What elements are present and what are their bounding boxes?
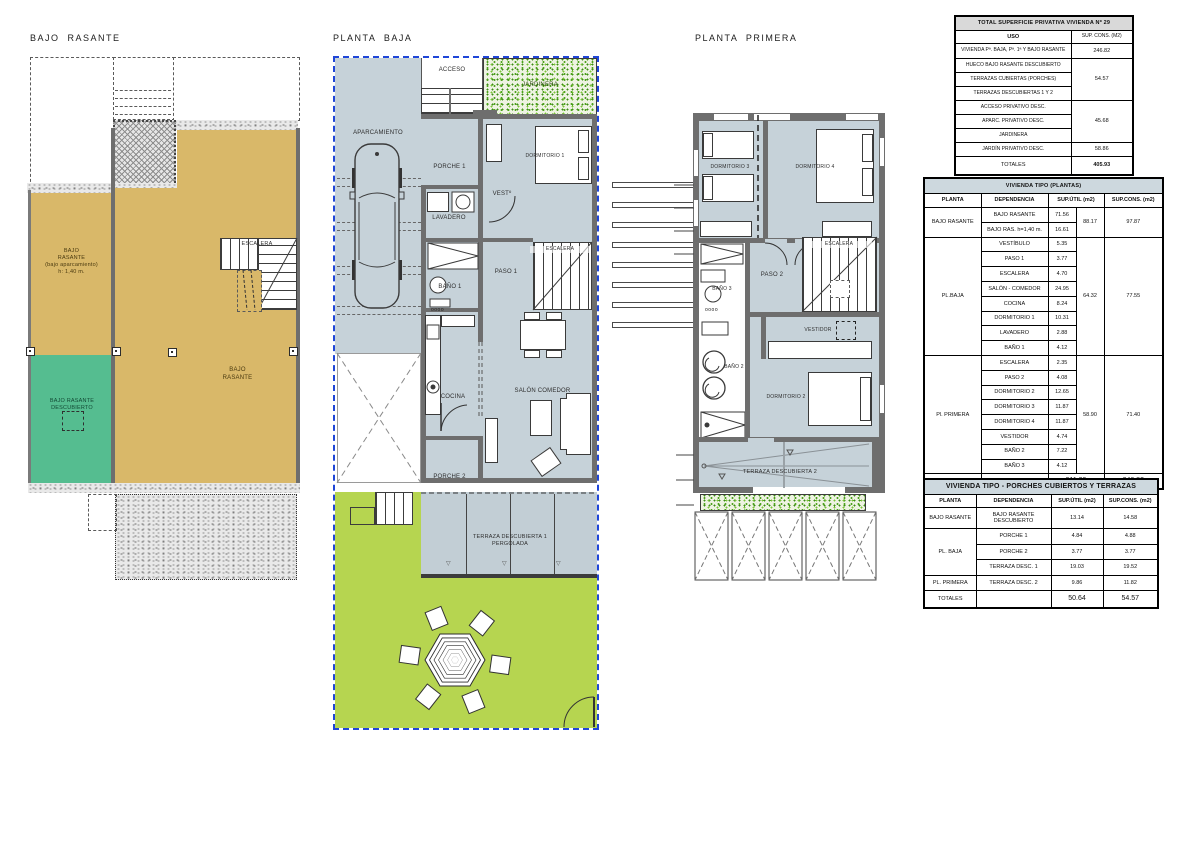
plan-title-bajo-rasante: BAJO RASANTE: [30, 33, 121, 43]
util-cell: 5.35: [1048, 237, 1076, 252]
void-room-outline: [30, 57, 115, 187]
wall: [745, 317, 750, 440]
planta-cell: PL.BAJA: [924, 237, 981, 355]
planter-outline: [62, 411, 84, 431]
dependencia-cell: DORMITORIO 4: [981, 415, 1048, 430]
wall: [28, 190, 31, 483]
louver-bar: [612, 322, 694, 328]
stair-diagonal: [802, 237, 877, 312]
totales-label: TOTALES: [924, 591, 976, 609]
dependencia-cell: TERRAZA DESC. 1: [976, 560, 1051, 576]
louver-bar: [612, 302, 694, 308]
void-room-outline: [173, 57, 300, 121]
util-cell: 4.12: [1048, 459, 1076, 474]
util-cell: 19.03: [1051, 560, 1103, 576]
section-dash-line: [757, 115, 759, 240]
col-header-planta: PLANTA: [924, 194, 981, 208]
util-cell: 3.77: [1048, 252, 1076, 267]
util-cell: 11.87: [1048, 415, 1076, 430]
pillow: [703, 176, 713, 200]
window: [714, 114, 748, 120]
stair-void-outline: [113, 57, 175, 120]
door-arc: [765, 243, 787, 265]
subtotal-cell: 58.90: [1076, 355, 1104, 473]
table-vivienda-tipo-plantas: VIVIENDA TIPO (PLANTAS) PLANTA DEPENDENC…: [923, 177, 1164, 490]
wall: [763, 121, 768, 238]
value-cell: 54.57: [1071, 59, 1133, 101]
util-cell: 11.87: [1048, 400, 1076, 415]
col-header-uso: USO: [955, 31, 1071, 44]
util-cell: 2.88: [1048, 326, 1076, 341]
util-cell: 16.61: [1048, 222, 1076, 237]
room-label-bajo-aparcamiento: BAJO RASANTE (bajo aparcamiento) h: 1,40…: [30, 248, 113, 277]
exterior-stair-outline: [88, 494, 117, 531]
hatched-terrace-below: [115, 494, 297, 580]
dependencia-cell: DORMITORIO 2: [981, 385, 1048, 400]
terrace-sight-lines: [699, 442, 875, 488]
column-marker: [112, 347, 121, 356]
planta-cell: BAJO RASANTE: [924, 208, 981, 238]
column-marker: [168, 348, 177, 357]
uso-cell: TERRAZAS DESCUBIERTAS 1 Y 2: [955, 87, 1071, 101]
util-cell: 8.24: [1048, 296, 1076, 311]
dependencia-cell: BAJO RASANTE DESCUBIERTO: [976, 508, 1051, 529]
planta-cell: BAJO RASANTE: [924, 508, 976, 529]
section-ticks: [676, 450, 694, 530]
plan-title-planta-primera: PLANTA PRIMERA: [695, 33, 797, 43]
dependencia-cell: BAJO RAS. h=1,40 m.: [981, 222, 1048, 237]
table-title: VIVIENDA TIPO - PORCHES CUBIERTOS Y TERR…: [924, 479, 1158, 495]
dependencia-cell: VESTÍBULO: [981, 237, 1048, 252]
pillow: [860, 377, 871, 421]
stair-diagonal: [258, 238, 297, 310]
util-cell: 7.22: [1048, 444, 1076, 459]
stair-hatch-outline: [830, 280, 850, 298]
dependencia-cell: DORMITORIO 3: [981, 400, 1048, 415]
window: [880, 385, 884, 413]
dependencia-cell: LAVADERO: [981, 326, 1048, 341]
stair-dash-line: [115, 106, 171, 107]
window: [694, 200, 698, 226]
value-cell: 246.82: [1071, 44, 1133, 59]
util-cell: 4.12: [1048, 341, 1076, 356]
util-cell: 12.65: [1048, 385, 1076, 400]
planter-strip: [700, 494, 866, 511]
dependencia-cell: COCINA: [981, 296, 1048, 311]
closet: [700, 221, 752, 237]
planta-cell: PL. BAJA: [924, 529, 976, 576]
stair-dash-line: [115, 98, 171, 99]
dependencia-cell: TERRAZA DESC. 2: [976, 575, 1051, 591]
wall: [761, 317, 766, 359]
totales-cons: 54.57: [1103, 591, 1158, 609]
uso-cell: HUECO BAJO RASANTE DESCUBIERTO: [955, 59, 1071, 73]
planta-cell: Pl. PRIMERA: [924, 355, 981, 473]
window: [754, 114, 790, 120]
cons-cell: 97.87: [1104, 208, 1163, 238]
table-porches-terrazas: VIVIENDA TIPO - PORCHES CUBIERTOS Y TERR…: [923, 478, 1159, 609]
planta-cell: PL. PRIMERA: [924, 575, 976, 591]
empty-cell: [976, 591, 1051, 609]
col-header-sup-cons: SUP.CONS. (m2): [1104, 194, 1163, 208]
stair-dash-arrows: [237, 270, 260, 310]
util-cell: 10.31: [1048, 311, 1076, 326]
skylight-outline: [836, 321, 856, 340]
room-label-escalera: ESCALERA: [222, 241, 292, 248]
window: [880, 138, 884, 166]
window-symbol: oooo: [705, 308, 718, 313]
wall: [879, 113, 885, 493]
cons-cell: 11.82: [1103, 575, 1158, 591]
column-marker: [26, 347, 35, 356]
pillow: [862, 168, 873, 196]
room-label-bajo-rasante: BAJO RASANTE: [180, 367, 295, 383]
table-title: TOTAL SUPERFICIE PRIVATIVA VIVIENDA Nº 2…: [955, 16, 1133, 31]
hatched-wall-band: [28, 483, 300, 493]
bathroom-fixtures: [701, 244, 743, 304]
uso-cell: JARDINERA: [955, 129, 1071, 143]
room-label-terraza2: TERRAZA DESCUBIERTA 2: [715, 469, 845, 476]
util-cell: 4.84: [1051, 529, 1103, 545]
uso-cell: TERRAZAS CUBIERTAS (PORCHES): [955, 73, 1071, 87]
col-header-sup-cons: SUP. CONS. (M2): [1071, 31, 1133, 44]
util-cell: 4.08: [1048, 370, 1076, 385]
dependencia-cell: DORMITORIO 1: [981, 311, 1048, 326]
window: [846, 114, 878, 120]
cons-cell: 19.52: [1103, 560, 1158, 576]
plot-boundary: [333, 56, 599, 730]
dependencia-cell: BAÑO 2: [981, 444, 1048, 459]
pergola-post-line: [783, 442, 785, 488]
wall: [111, 128, 115, 483]
stair-dash-line: [115, 114, 171, 115]
bathroom-fixtures: [701, 318, 745, 440]
dependencia-cell: SALÓN - COMEDOR: [981, 281, 1048, 296]
uso-cell: VIVIENDA Pª. BAJA, Pª. 1ª Y BAJO RASANTE: [955, 44, 1071, 59]
stair-dash-line: [115, 90, 171, 91]
uso-cell: ACCESO PRIVATIVO DESC.: [955, 101, 1071, 115]
util-cell: 2.35: [1048, 355, 1076, 370]
wall: [693, 487, 753, 493]
room-label-dormitorio3: DORMITORIO 3: [698, 164, 762, 171]
cons-cell: 77.55: [1104, 237, 1163, 355]
table-superficie-privativa: TOTAL SUPERFICIE PRIVATIVA VIVIENDA Nº 2…: [954, 15, 1134, 176]
table-title: VIVIENDA TIPO (PLANTAS): [924, 178, 1163, 194]
bajo-rasante-fill: [115, 188, 298, 483]
bajo-rasante-fill: [177, 130, 298, 190]
pergola-panels: [695, 512, 881, 582]
room-label-dormitorio2: DORMITORIO 2: [748, 394, 824, 401]
util-cell: 4.70: [1048, 267, 1076, 282]
util-cell: 9.86: [1051, 575, 1103, 591]
room-label-escalera: ESCALERA: [806, 241, 872, 248]
closet: [822, 221, 872, 237]
col-header-dependencia: DEPENDENCIA: [976, 495, 1051, 508]
pillow: [703, 133, 713, 157]
hatched-wall-band: [173, 120, 298, 130]
column-marker: [289, 347, 298, 356]
crosshatch-shaft: [113, 120, 176, 187]
cons-cell: 71.40: [1104, 355, 1163, 473]
col-header-sup-util: SUP.ÚTIL (m2): [1048, 194, 1104, 208]
value-cell: 45.68: [1071, 101, 1133, 143]
room-label-descubierto: BAJO RASANTE DESCUBIERTO: [32, 398, 112, 412]
cons-cell: 3.77: [1103, 544, 1158, 560]
value-cell: 58.86: [1071, 143, 1133, 157]
closet: [768, 341, 872, 359]
cons-cell: 4.88: [1103, 529, 1158, 545]
plan-title-planta-baja: PLANTA BAJA: [333, 33, 412, 43]
dependencia-cell: PASO 2: [981, 370, 1048, 385]
totales-util: 50.64: [1051, 591, 1103, 609]
dependencia-cell: VESTIDOR: [981, 429, 1048, 444]
wall: [872, 442, 879, 487]
totales-value: 405.93: [1071, 157, 1133, 176]
dependencia-cell: PORCHE 2: [976, 544, 1051, 560]
room-label-dormitorio4: DORMITORIO 4: [772, 164, 858, 171]
cons-cell: 14.58: [1103, 508, 1158, 529]
util-cell: 4.74: [1048, 429, 1076, 444]
uso-cell: APARC. PRIVATIVO DESC.: [955, 115, 1071, 129]
dependencia-cell: PASO 1: [981, 252, 1048, 267]
floorplan-sheet: BAJO RASANTE ESCALERA BAJO RASANTE (bajo…: [0, 0, 1191, 842]
pillow: [862, 134, 873, 162]
dependencia-cell: BAJO RASANTE: [981, 208, 1048, 223]
totales-label: TOTALES: [955, 157, 1071, 176]
wall: [845, 487, 885, 493]
dependencia-cell: BAÑO 3: [981, 459, 1048, 474]
util-cell: 24.95: [1048, 281, 1076, 296]
util-cell: 13.14: [1051, 508, 1103, 529]
window: [694, 150, 698, 176]
subtotal-cell: 88.17: [1076, 208, 1104, 238]
util-cell: 71.56: [1048, 208, 1076, 223]
subtotal-cell: 64.32: [1076, 237, 1104, 355]
dependencia-cell: ESCALERA: [981, 267, 1048, 282]
col-header-sup-util: SUP.ÚTIL (m2): [1051, 495, 1103, 508]
col-header-planta: PLANTA: [924, 495, 976, 508]
util-cell: 3.77: [1051, 544, 1103, 560]
uso-cell: JARDÍN PRIVATIVO DESC.: [955, 143, 1071, 157]
dependencia-cell: BAÑO 1: [981, 341, 1048, 356]
section-ticks: [674, 180, 694, 300]
dependencia-cell: ESCALERA: [981, 355, 1048, 370]
room-label-paso2: PASO 2: [748, 272, 796, 280]
col-header-dependencia: DEPENDENCIA: [981, 194, 1048, 208]
col-header-sup-cons: SUP.CONS. (m2): [1103, 495, 1158, 508]
dependencia-cell: PORCHE 1: [976, 529, 1051, 545]
room-label-bano3: BAÑO 3: [700, 286, 744, 293]
